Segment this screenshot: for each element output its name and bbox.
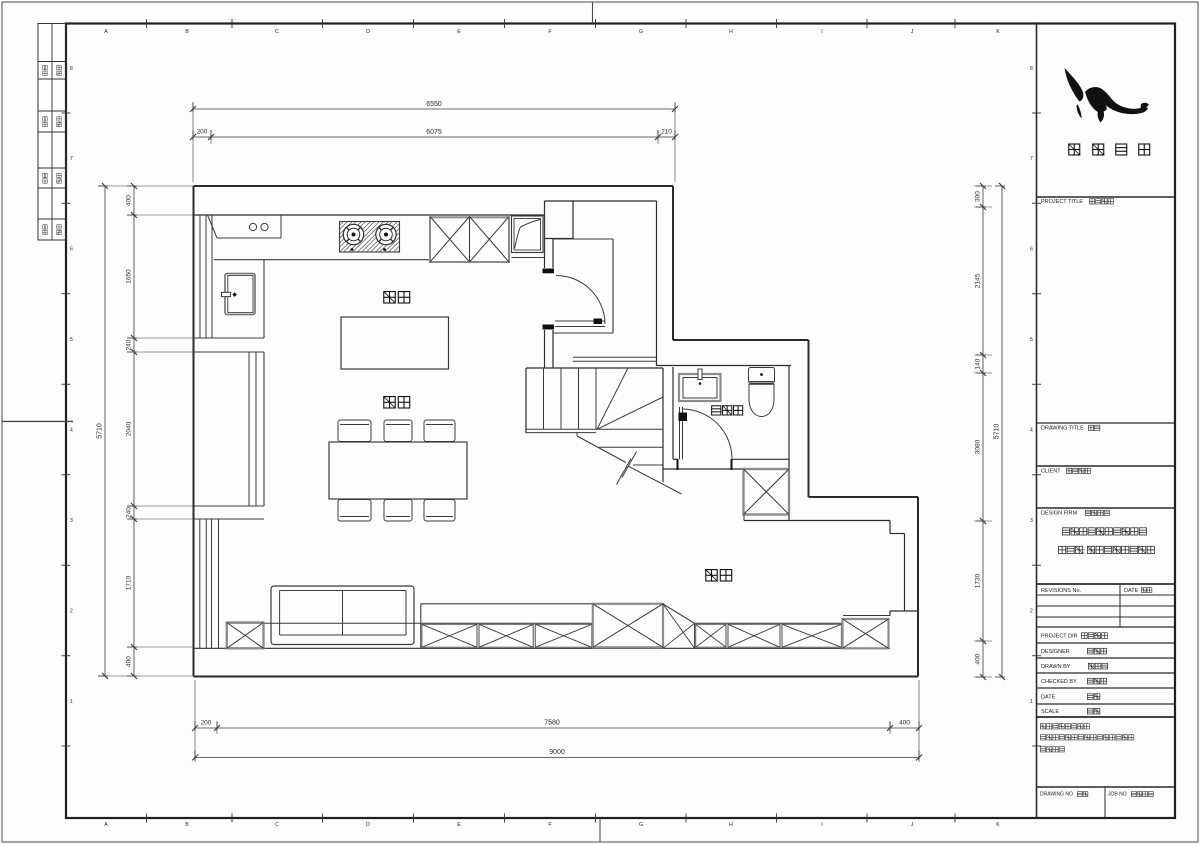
svg-text:1: 1 [1030,699,1033,705]
svg-text:240: 240 [126,507,133,518]
svg-text:2145: 2145 [975,273,982,288]
svg-text:E: E [457,822,461,828]
svg-text:G: G [639,29,643,35]
svg-text:E: E [457,29,461,35]
svg-text:7: 7 [70,156,73,162]
svg-text:DESIGNER: DESIGNER [1041,649,1070,655]
svg-text:7: 7 [1030,156,1033,162]
svg-text:PROJECT TITLE: PROJECT TITLE [1041,199,1083,205]
svg-text:D: D [366,822,370,828]
svg-text:D: D [366,29,370,35]
svg-text:3: 3 [1030,518,1033,524]
svg-text:400: 400 [975,653,982,664]
svg-text:I: I [821,29,822,35]
svg-text:200: 200 [197,129,208,136]
svg-text:1: 1 [70,699,73,705]
svg-text:B: B [185,822,189,828]
svg-text:K: K [996,822,1000,828]
svg-text:5: 5 [1030,337,1033,343]
svg-text:PROJECT DIR: PROJECT DIR [1041,634,1078,640]
svg-text:DATE: DATE [1041,695,1056,701]
svg-text:1710: 1710 [126,575,133,590]
svg-text:J: J [911,822,914,828]
svg-text:3: 3 [70,518,73,524]
svg-text:5: 5 [70,337,73,343]
svg-text:6: 6 [1030,247,1033,253]
svg-text:CHECKED BY: CHECKED BY [1041,679,1077,685]
svg-text:8: 8 [70,66,73,72]
svg-text:240: 240 [126,339,133,350]
svg-text:C: C [275,822,279,828]
svg-text:1650: 1650 [126,269,133,284]
svg-text:A: A [104,822,108,828]
svg-text:6550: 6550 [426,101,442,108]
svg-text:7580: 7580 [544,720,560,727]
svg-text:1730: 1730 [975,573,982,588]
svg-text:2: 2 [70,609,73,615]
svg-text:DRAWING NO: DRAWING NO [1040,792,1073,798]
svg-text:DESIGN FIRM: DESIGN FIRM [1041,511,1077,517]
svg-text:300: 300 [975,191,982,202]
svg-text:CLIENT: CLIENT [1041,469,1061,475]
svg-text:SCALE: SCALE [1041,709,1059,715]
svg-text:5710: 5710 [97,423,104,439]
svg-text:F: F [548,822,551,828]
svg-text:K: K [996,29,1000,35]
svg-text:A: A [104,29,108,35]
svg-text::: : [1083,547,1085,556]
svg-text:210: 210 [661,129,672,136]
svg-text:2: 2 [1030,609,1033,615]
svg-text:JOB NO: JOB NO [1108,792,1127,798]
svg-text:REVISIONS No.: REVISIONS No. [1041,588,1082,594]
svg-text:DATE: DATE [1124,588,1139,594]
svg-text:6075: 6075 [426,129,442,136]
svg-text:140: 140 [975,358,982,369]
svg-text:200: 200 [201,720,212,727]
svg-text:400: 400 [899,720,910,727]
svg-text:4: 4 [1030,428,1033,434]
svg-text:5710: 5710 [994,424,1001,440]
svg-text:8: 8 [1030,66,1033,72]
svg-text:H: H [729,822,733,828]
svg-text:DRAWN BY: DRAWN BY [1041,664,1071,670]
svg-text:F: F [548,29,551,35]
svg-text:C: C [275,29,279,35]
svg-text:6: 6 [70,247,73,253]
svg-text:400: 400 [126,656,133,667]
svg-text:G: G [639,822,643,828]
svg-text:H: H [729,29,733,35]
svg-text:B: B [185,29,189,35]
svg-text:DRAWING TITLE: DRAWING TITLE [1041,426,1084,432]
svg-text:I: I [821,822,822,828]
svg-text:2040: 2040 [126,421,133,436]
svg-text:3080: 3080 [975,439,982,454]
svg-text:9000: 9000 [549,749,565,756]
svg-text:400: 400 [126,195,133,206]
svg-text:J: J [911,29,914,35]
svg-text:4: 4 [70,428,73,434]
